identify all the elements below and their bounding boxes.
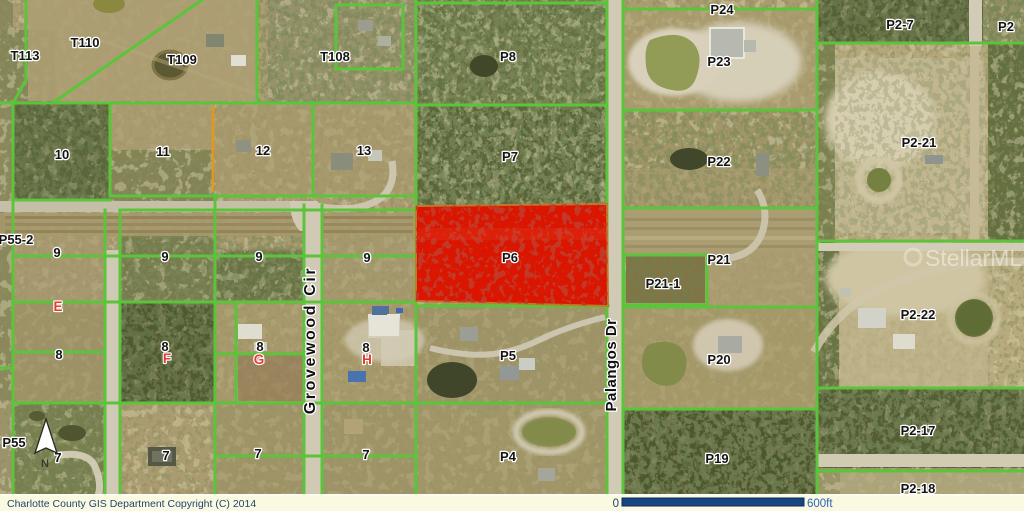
svg-text:T108: T108 — [320, 49, 350, 64]
svg-text:9: 9 — [363, 250, 370, 265]
svg-text:E: E — [53, 299, 62, 314]
svg-text:8: 8 — [55, 347, 62, 362]
svg-text:P55: P55 — [2, 435, 25, 450]
svg-text:P55-2: P55-2 — [0, 232, 33, 247]
svg-text:N: N — [41, 458, 49, 470]
svg-text:9: 9 — [161, 249, 168, 264]
svg-text:Palangos Dr: Palangos Dr — [603, 318, 620, 411]
svg-text:12: 12 — [256, 143, 270, 158]
svg-text:F: F — [163, 351, 171, 366]
svg-text:T109: T109 — [167, 52, 197, 67]
svg-text:13: 13 — [357, 143, 371, 158]
svg-text:P2-22: P2-22 — [901, 307, 936, 322]
svg-text:11: 11 — [156, 144, 170, 159]
svg-text:P8: P8 — [500, 49, 516, 64]
svg-text:P22: P22 — [707, 154, 730, 169]
svg-text:P23: P23 — [707, 54, 730, 69]
svg-text:P21: P21 — [707, 252, 730, 267]
svg-text:P7: P7 — [502, 149, 518, 164]
svg-text:9: 9 — [255, 249, 262, 264]
svg-text:600ft: 600ft — [807, 498, 833, 510]
svg-text:P4: P4 — [500, 449, 517, 464]
svg-text:P2-21: P2-21 — [902, 135, 937, 150]
svg-text:P6: P6 — [502, 250, 518, 265]
svg-text:10: 10 — [55, 147, 69, 162]
svg-text:P5: P5 — [500, 348, 516, 363]
svg-text:Grovewood Cir: Grovewood Cir — [302, 266, 319, 414]
svg-text:9: 9 — [53, 245, 60, 260]
svg-text:G: G — [254, 352, 265, 367]
svg-text:0: 0 — [613, 498, 619, 510]
svg-text:7: 7 — [162, 448, 169, 463]
svg-text:T110: T110 — [71, 35, 100, 50]
svg-text:T113: T113 — [11, 48, 40, 63]
svg-text:P2: P2 — [998, 19, 1014, 34]
svg-text:P2-18: P2-18 — [901, 481, 936, 496]
svg-text:StellarMLS: StellarMLS — [925, 245, 1024, 271]
svg-text:P19: P19 — [705, 451, 728, 466]
svg-text:Charlotte County GIS Departmen: Charlotte County GIS Department Copyrigh… — [7, 498, 256, 510]
svg-text:P24: P24 — [710, 2, 734, 17]
svg-text:P21-1: P21-1 — [646, 276, 681, 291]
svg-text:H: H — [362, 352, 372, 367]
svg-text:7: 7 — [362, 447, 369, 462]
svg-text:P20: P20 — [707, 352, 730, 367]
svg-text:7: 7 — [254, 446, 261, 461]
svg-text:P2-7: P2-7 — [886, 17, 913, 32]
svg-text:P2-17: P2-17 — [901, 423, 936, 438]
